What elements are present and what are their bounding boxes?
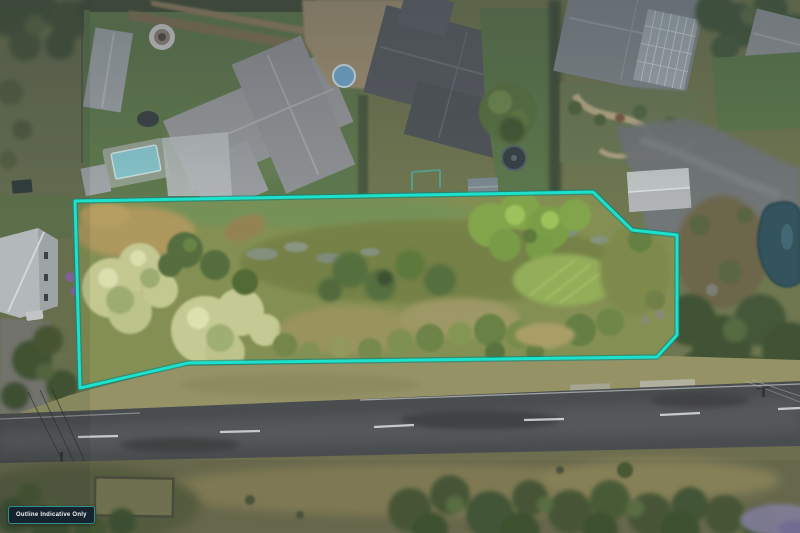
aerial-photo: Outline Indicative Only	[0, 0, 800, 533]
disclaimer-text: Outline Indicative Only	[16, 512, 87, 518]
aerial-photo-canvas	[0, 0, 800, 533]
haze-overlay	[0, 0, 800, 533]
disclaimer-badge: Outline Indicative Only	[8, 506, 95, 524]
